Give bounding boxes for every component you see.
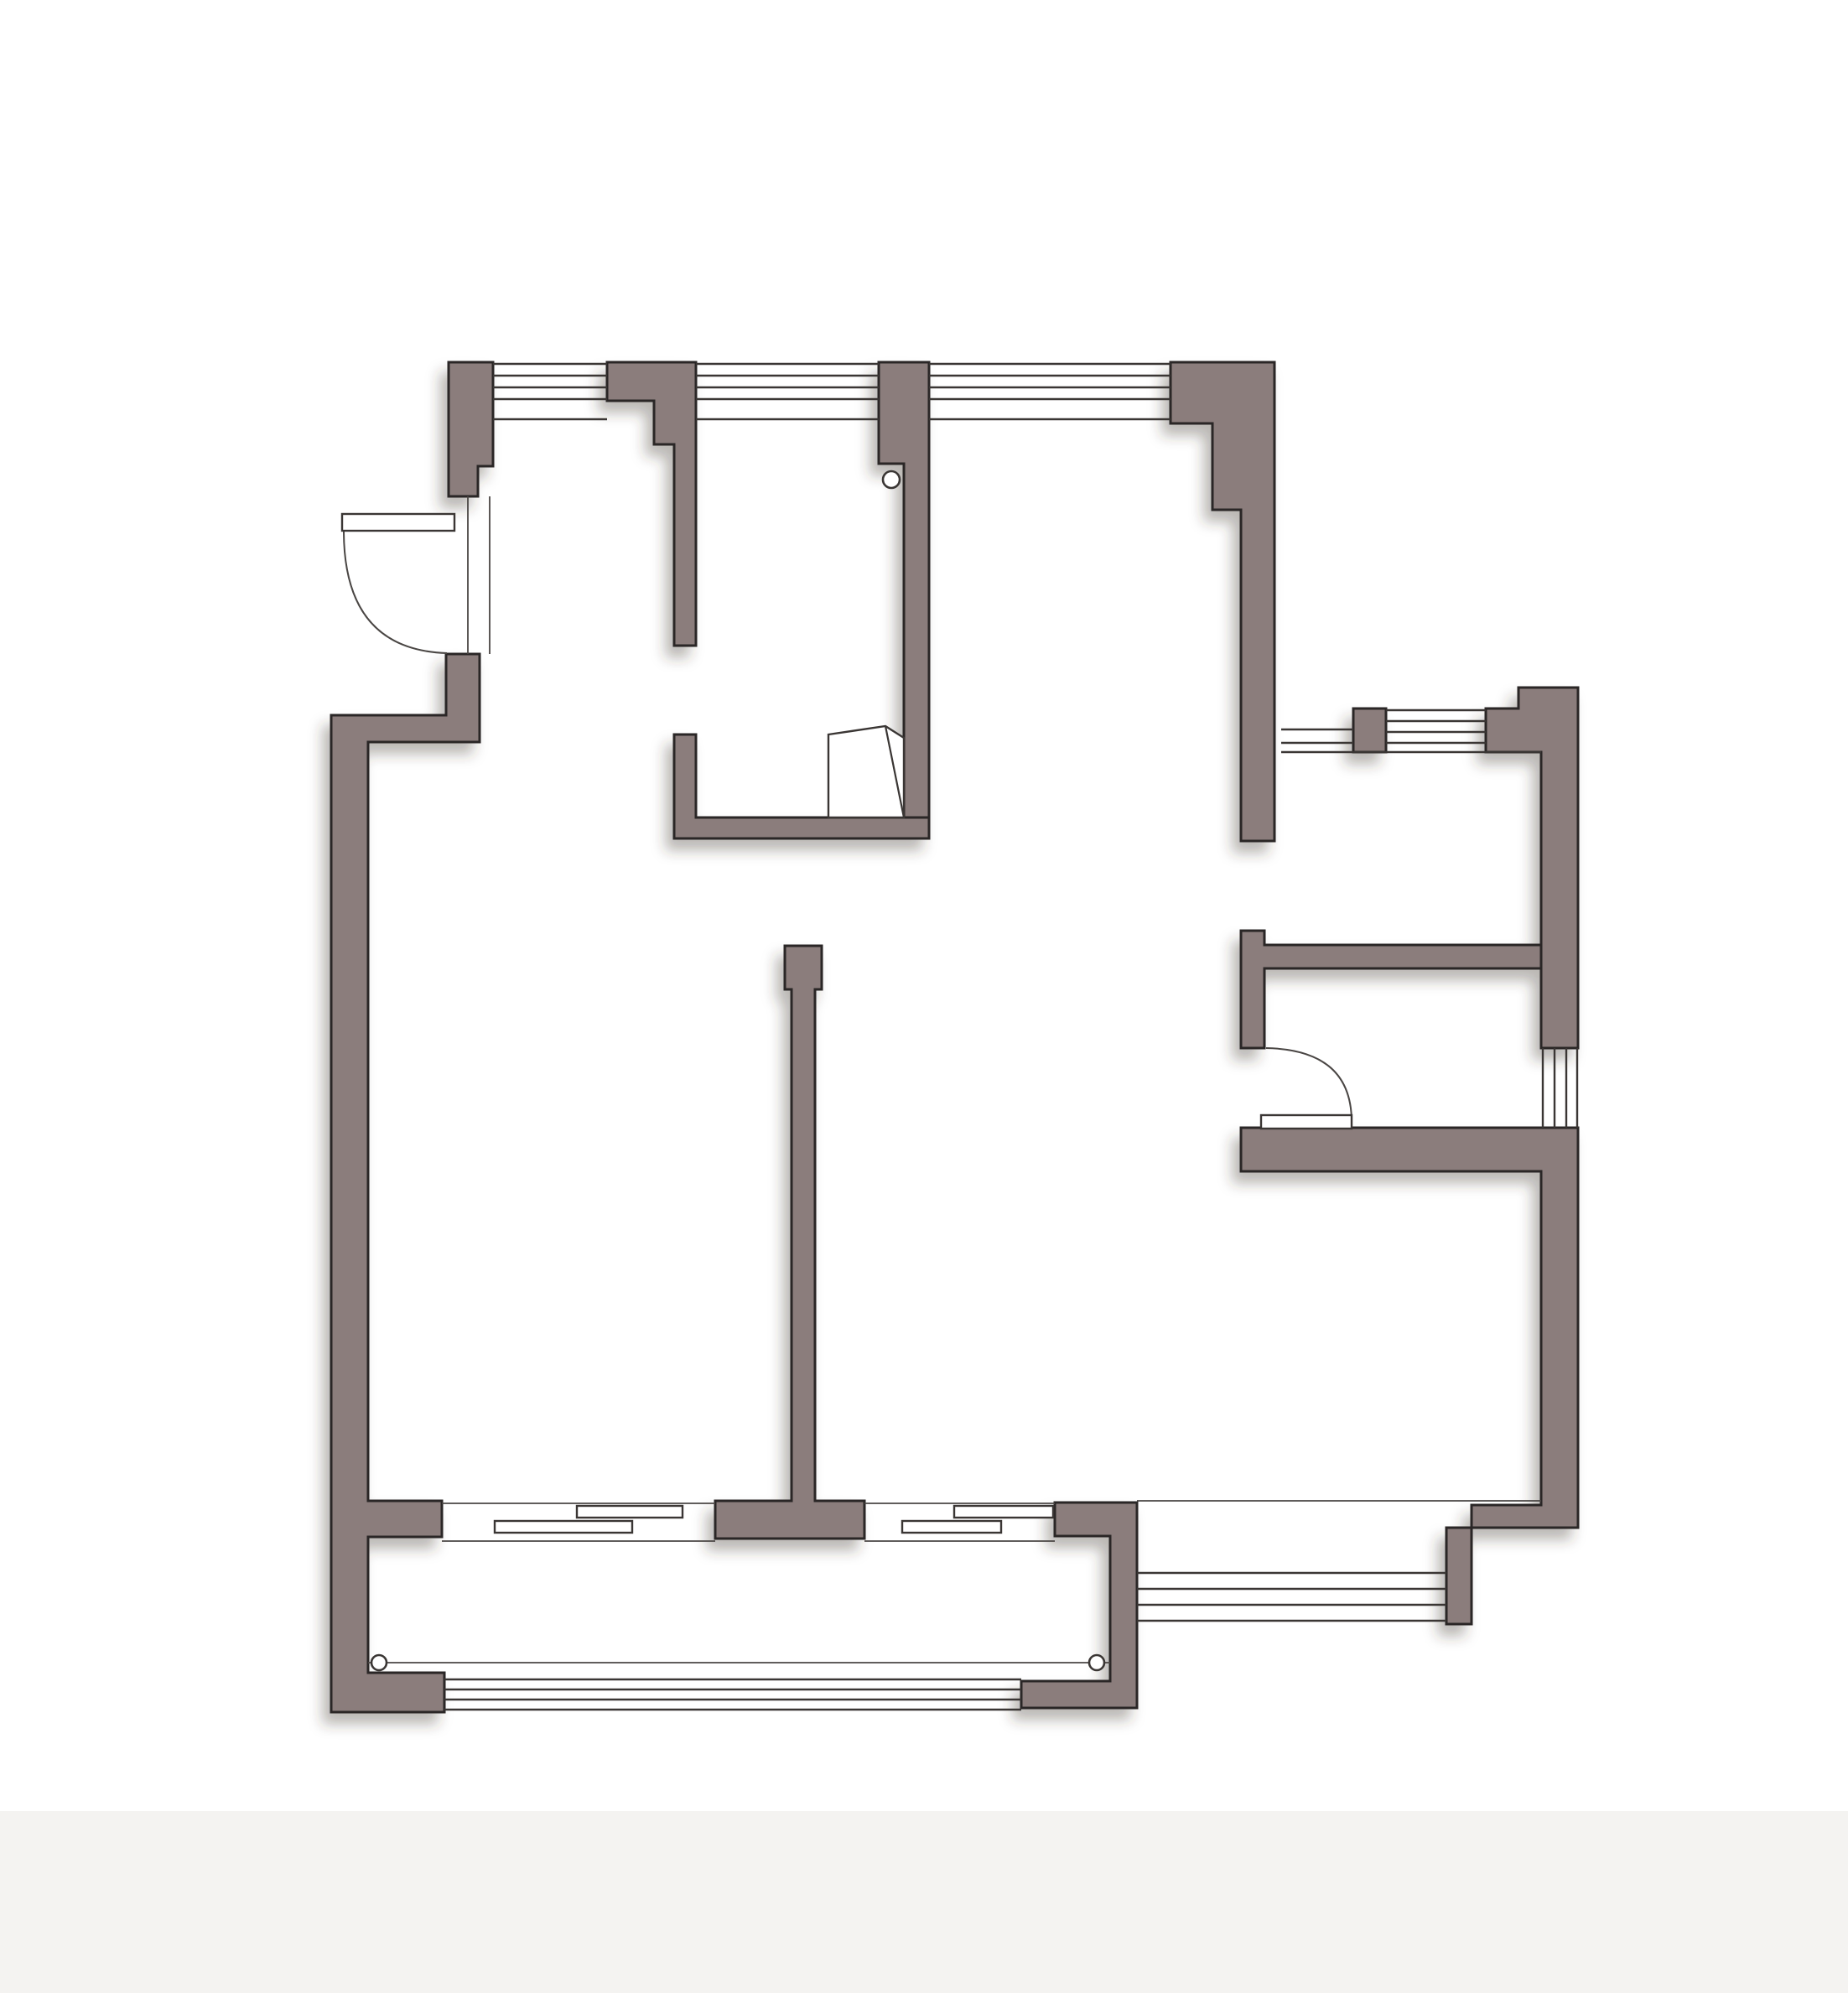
bath2-door-leaf	[1261, 1115, 1352, 1129]
kitchen-window-left-pier	[1353, 708, 1386, 752]
balcony-left-marker	[371, 1655, 387, 1670]
living-slider-panel-2	[495, 1521, 632, 1533]
living-slider-panel-1	[577, 1506, 683, 1518]
closet-fold-door-panel	[828, 726, 904, 817]
dining-slider-panel-1	[954, 1506, 1053, 1518]
closet-hinge-marker	[883, 471, 900, 488]
screenshot-root	[0, 0, 1848, 1993]
dining-slider-panel-2	[902, 1521, 1001, 1533]
footer-tint-band	[0, 1811, 1848, 1993]
floorplan-canvas	[0, 0, 1848, 1993]
balcony-right-marker	[1089, 1655, 1104, 1670]
closet-fold-door	[828, 726, 904, 817]
entry-door-leaf	[342, 514, 454, 531]
